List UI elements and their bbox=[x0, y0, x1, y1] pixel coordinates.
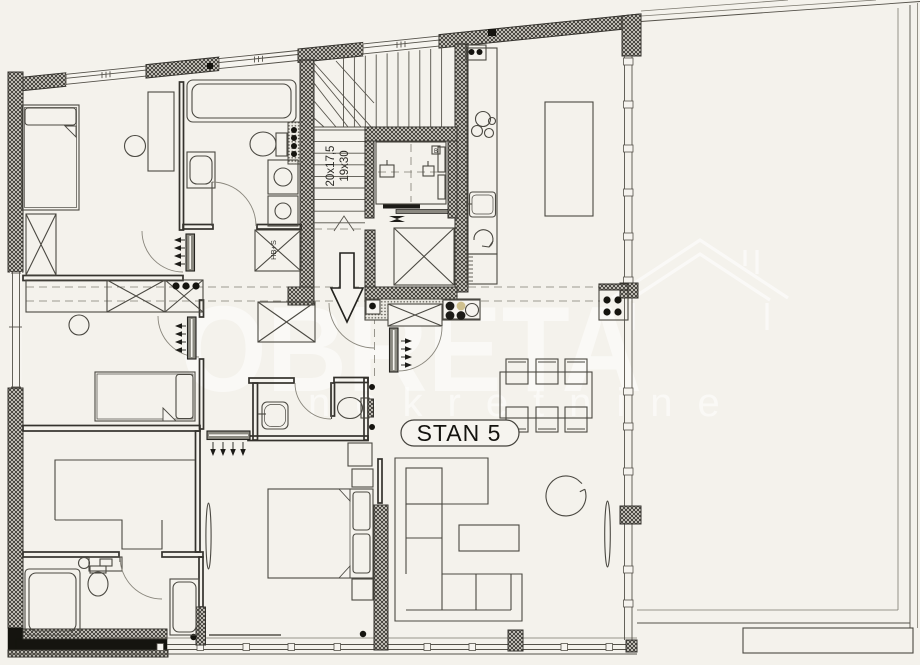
svg-text:STAN 5: STAN 5 bbox=[417, 420, 502, 446]
svg-text:HB+S: HB+S bbox=[269, 240, 278, 260]
svg-text:19x30: 19x30 bbox=[339, 150, 351, 181]
svg-text:20x17,5: 20x17,5 bbox=[325, 146, 337, 187]
svg-text:B: B bbox=[434, 149, 438, 155]
